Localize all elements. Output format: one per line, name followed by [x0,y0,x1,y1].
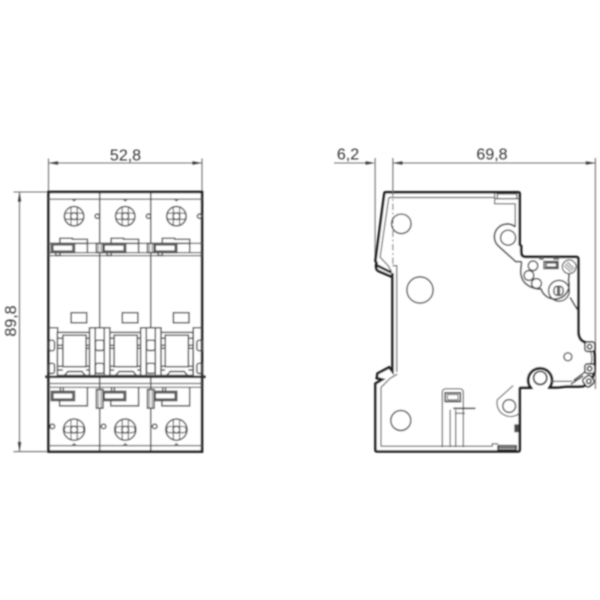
svg-text:52,8: 52,8 [110,147,141,164]
svg-text:69,8: 69,8 [476,147,507,164]
svg-text:89,8: 89,8 [3,305,20,336]
svg-text:6,2: 6,2 [337,147,359,164]
